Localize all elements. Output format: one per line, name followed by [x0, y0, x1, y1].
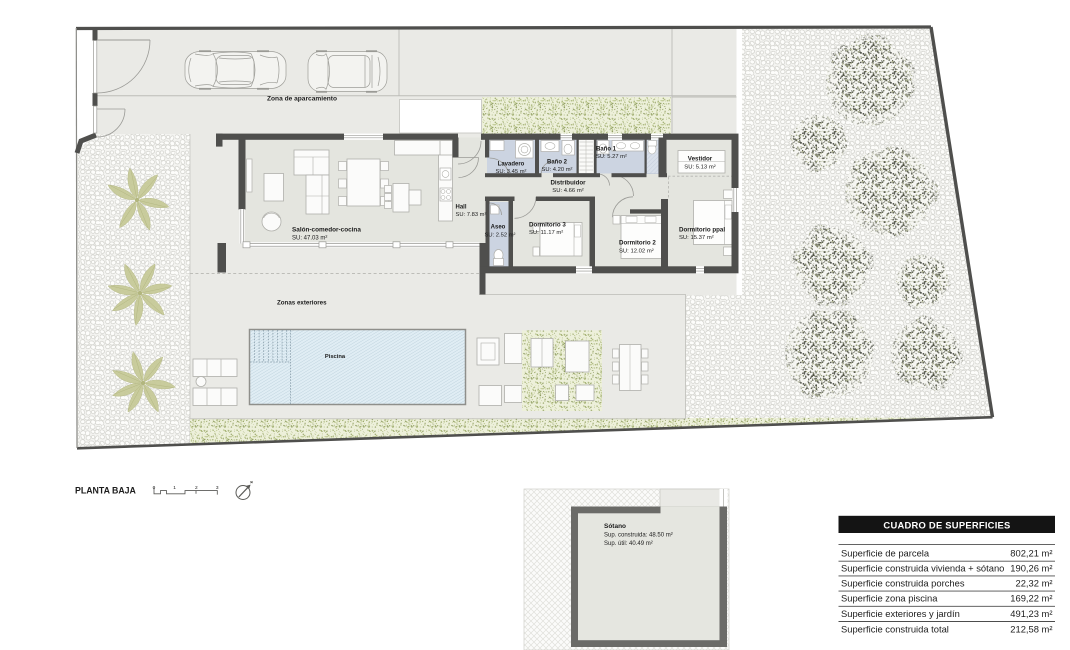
svg-text:SU: 4.66 m²: SU: 4.66 m² — [552, 188, 583, 194]
svg-text:Dormitorio 2: Dormitorio 2 — [619, 240, 656, 247]
svg-text:Superficie zona piscina: Superficie zona piscina — [841, 593, 938, 604]
svg-text:Sótano: Sótano — [604, 523, 626, 530]
svg-text:CUADRO DE SUPERFICIES: CUADRO DE SUPERFICIES — [883, 520, 1010, 531]
svg-text:Vestidor: Vestidor — [688, 156, 713, 163]
svg-text:Dormitorio 3: Dormitorio 3 — [529, 221, 566, 228]
svg-text:SU: 11.17 m²: SU: 11.17 m² — [529, 230, 563, 236]
svg-text:3: 3 — [216, 485, 219, 491]
svg-text:SU: 12.02 m²: SU: 12.02 m² — [619, 248, 654, 254]
svg-text:212,58 m²: 212,58 m² — [1010, 624, 1052, 635]
svg-text:SU: 7.83 m²: SU: 7.83 m² — [456, 212, 487, 218]
svg-text:Hall: Hall — [456, 204, 467, 210]
svg-text:Zona de aparcamiento: Zona de aparcamiento — [267, 96, 337, 103]
svg-text:Salón-comedor-cocina: Salón-comedor-cocina — [292, 226, 361, 233]
svg-text:Distribuidor: Distribuidor — [550, 179, 586, 186]
svg-text:169,22 m²: 169,22 m² — [1010, 593, 1052, 604]
svg-text:802,21 m²: 802,21 m² — [1010, 547, 1052, 558]
svg-text:491,23 m²: 491,23 m² — [1010, 608, 1052, 619]
svg-text:SU: 47.03 m²: SU: 47.03 m² — [292, 235, 327, 241]
svg-text:SU: 15.37 m²: SU: 15.37 m² — [679, 235, 714, 241]
svg-text:Baño 2: Baño 2 — [547, 159, 568, 165]
svg-text:Piscina: Piscina — [325, 354, 346, 360]
svg-text:SU: 3.45 m²: SU: 3.45 m² — [496, 169, 527, 175]
svg-text:Zonas exteriores: Zonas exteriores — [277, 300, 327, 307]
svg-text:Sup. construida: 48.50 m²: Sup. construida: 48.50 m² — [604, 533, 673, 539]
svg-text:Baño 1: Baño 1 — [596, 147, 617, 153]
svg-text:SU: 5.13 m²: SU: 5.13 m² — [684, 164, 715, 170]
svg-text:Superficie exteriores y jardín: Superficie exteriores y jardín — [841, 608, 960, 619]
svg-text:1: 1 — [173, 485, 176, 491]
svg-text:SU: 5.27 m²: SU: 5.27 m² — [596, 154, 627, 160]
svg-text:Superficie construida total: Superficie construida total — [841, 624, 949, 635]
svg-text:Dormitorio ppal: Dormitorio ppal — [679, 226, 725, 233]
svg-text:Aseo: Aseo — [491, 225, 506, 231]
svg-text:190,26 m²: 190,26 m² — [1010, 562, 1052, 573]
svg-text:Superficie construida porches: Superficie construida porches — [841, 577, 965, 588]
svg-text:Lavadero: Lavadero — [498, 161, 525, 167]
svg-text:SU: 2.52 m²: SU: 2.52 m² — [485, 232, 516, 238]
svg-text:22,32 m²: 22,32 m² — [1016, 577, 1053, 588]
svg-text:Superficie de parcela: Superficie de parcela — [841, 547, 930, 558]
svg-text:SU: 4.20 m²: SU: 4.20 m² — [542, 167, 573, 173]
svg-text:2: 2 — [195, 485, 198, 491]
svg-text:Sup. útil: 40.49 m²: Sup. útil: 40.49 m² — [604, 541, 653, 547]
svg-text:PLANTA BAJA: PLANTA BAJA — [75, 486, 137, 496]
svg-text:Superficie construida vivienda: Superficie construida vivienda + sótano — [841, 562, 1004, 573]
